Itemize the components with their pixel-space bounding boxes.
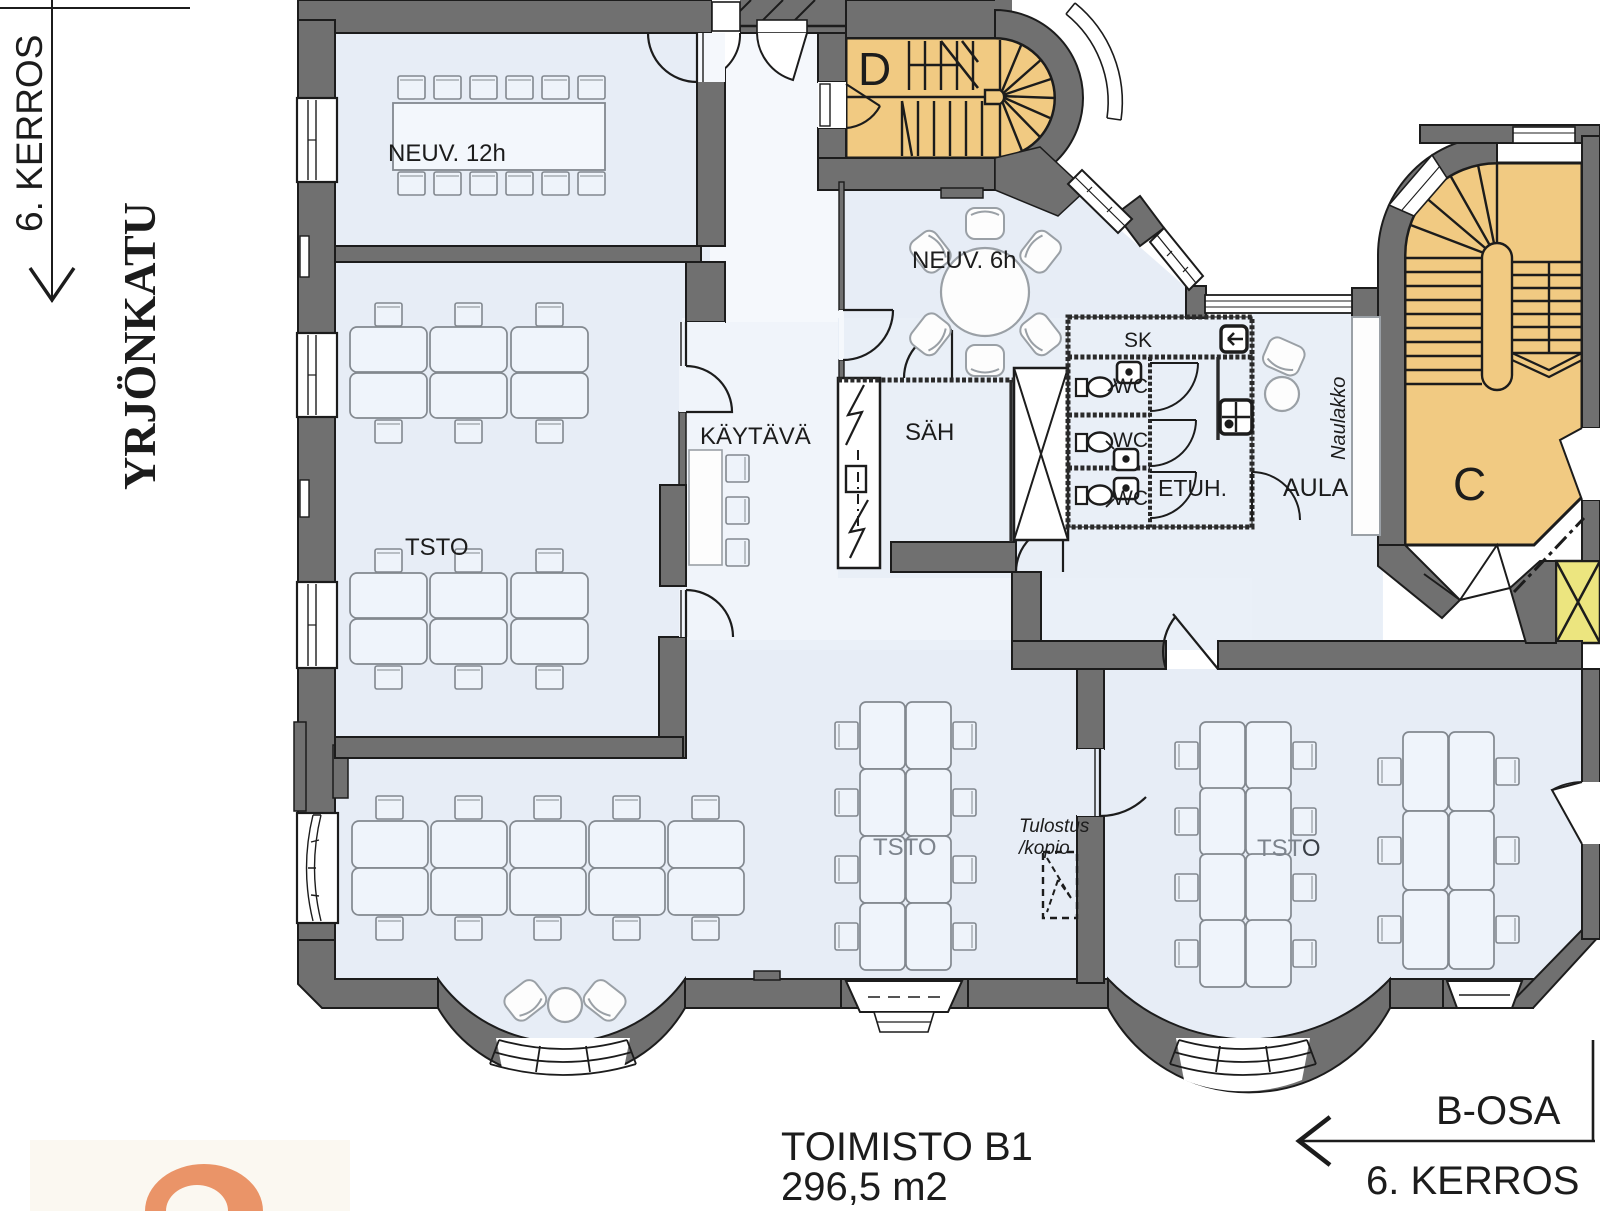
svg-text:6. KERROS: 6. KERROS — [9, 35, 50, 232]
svg-text:/kopio: /kopio — [1017, 838, 1070, 859]
svg-text:Tulostus: Tulostus — [1019, 816, 1090, 837]
svg-text:YRJÖNKATU: YRJÖNKATU — [114, 202, 165, 490]
svg-text:WC: WC — [1113, 487, 1148, 510]
svg-text:296,5 m2: 296,5 m2 — [781, 1165, 948, 1209]
svg-text:ETUH.: ETUH. — [1158, 475, 1227, 501]
svg-text:TSTO: TSTO — [873, 834, 937, 861]
svg-text:6. KERROS: 6. KERROS — [1366, 1159, 1579, 1203]
svg-text:WC: WC — [1113, 429, 1148, 452]
svg-text:KÄYTÄVÄ: KÄYTÄVÄ — [700, 423, 811, 450]
svg-text:AULA: AULA — [1283, 474, 1349, 502]
svg-text:SÄH: SÄH — [905, 419, 954, 446]
svg-text:TOIMISTO B1: TOIMISTO B1 — [781, 1125, 1033, 1169]
svg-text:TSTO: TSTO — [405, 534, 469, 561]
svg-text:B-OSA: B-OSA — [1436, 1089, 1561, 1133]
svg-text:TSTO: TSTO — [1257, 835, 1321, 862]
svg-text:D: D — [858, 43, 891, 95]
svg-text:Naulakko: Naulakko — [1328, 377, 1350, 460]
svg-text:NEUV. 6h: NEUV. 6h — [912, 247, 1017, 274]
svg-text:WC: WC — [1113, 375, 1148, 398]
svg-text:NEUV. 12h: NEUV. 12h — [388, 140, 506, 167]
svg-text:C: C — [1453, 458, 1486, 510]
svg-text:SK: SK — [1124, 329, 1152, 352]
